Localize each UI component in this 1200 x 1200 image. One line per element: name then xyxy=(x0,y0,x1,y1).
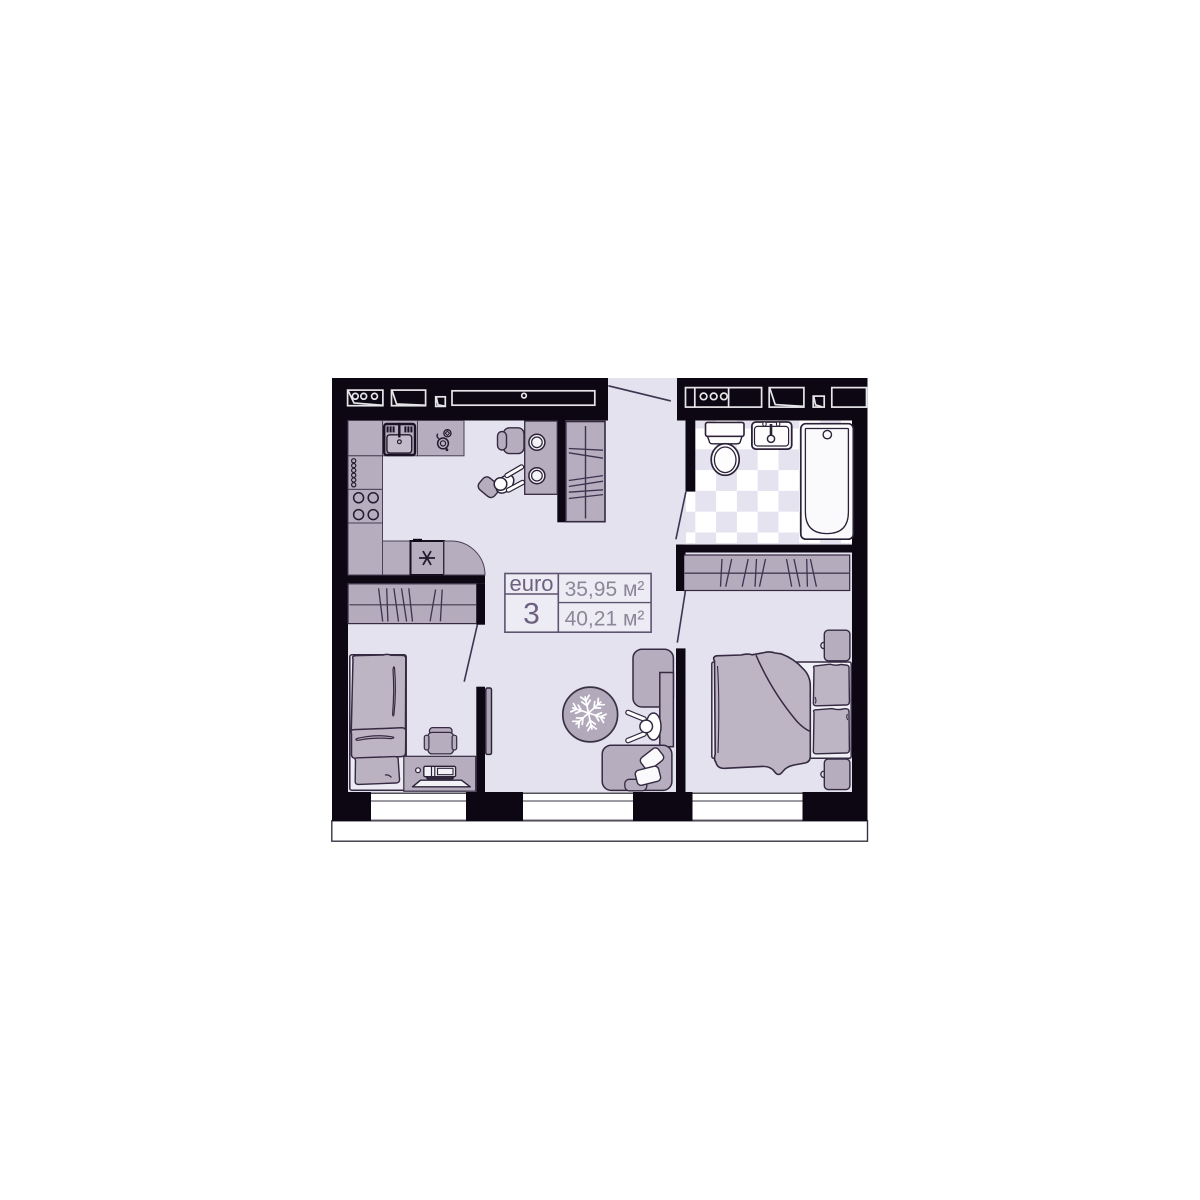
svg-text:euro: euro xyxy=(509,571,553,596)
svg-text:3: 3 xyxy=(523,598,540,631)
svg-text:40,21 м²: 40,21 м² xyxy=(565,608,645,631)
svg-text:35,95 м²: 35,95 м² xyxy=(565,578,645,601)
